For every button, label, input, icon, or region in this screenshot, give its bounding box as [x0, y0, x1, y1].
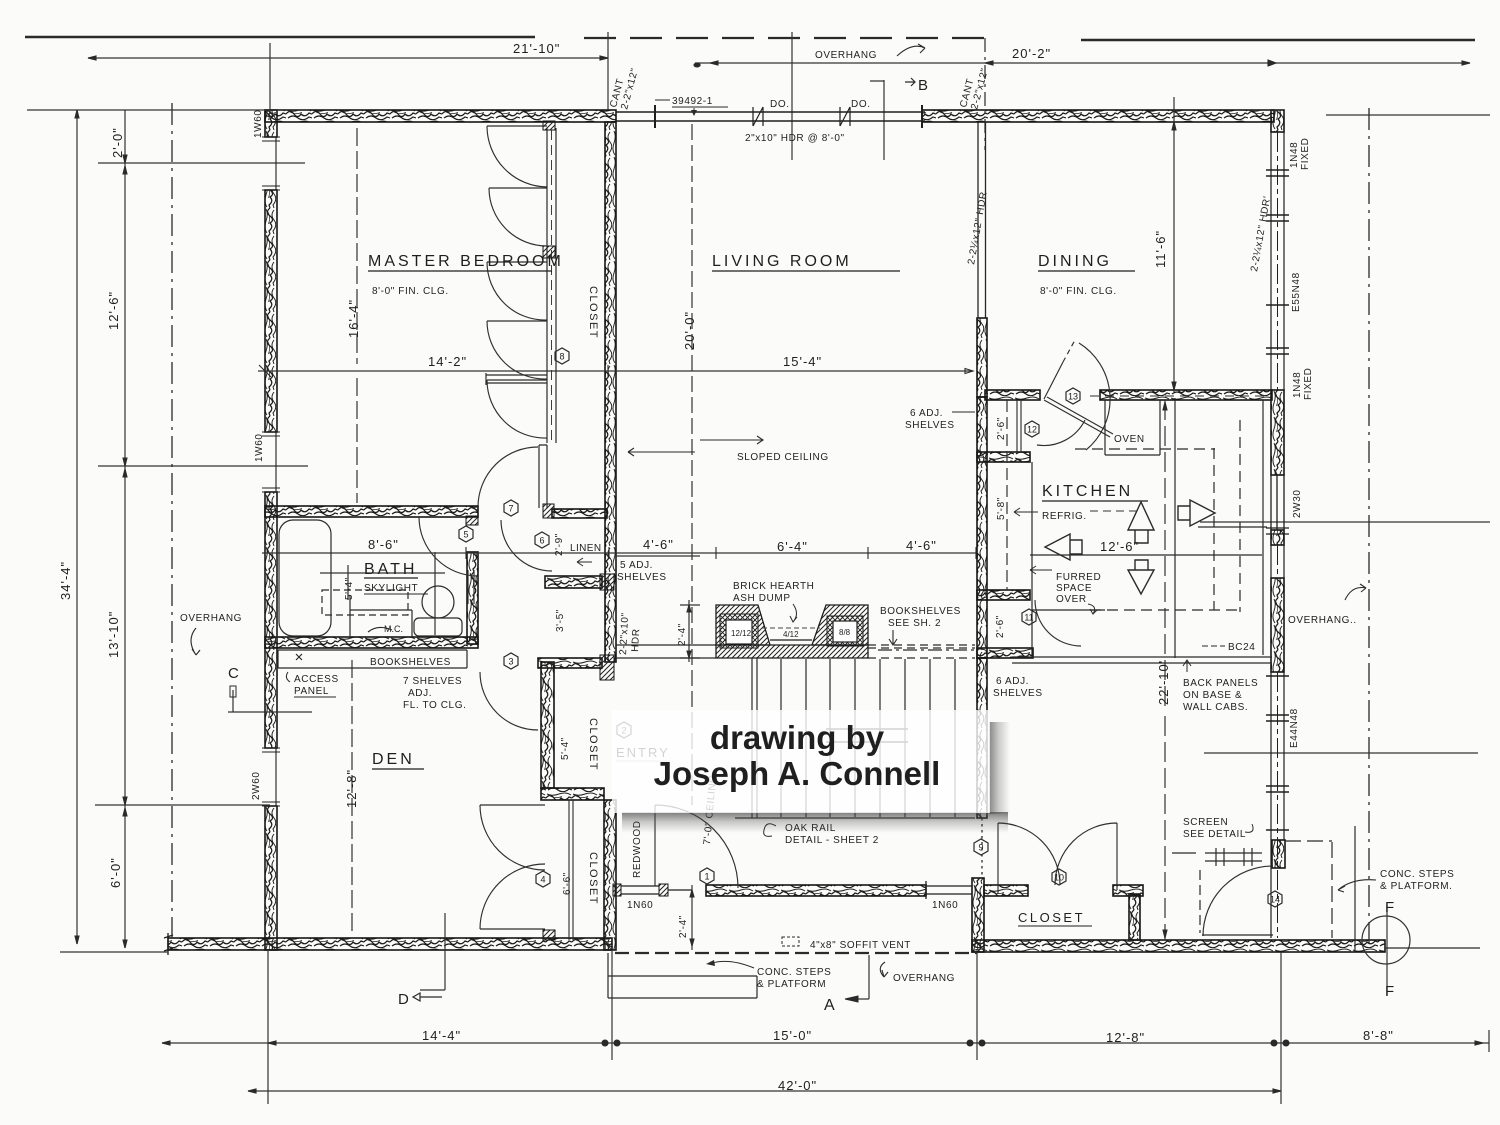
svg-text:SHELVES: SHELVES: [617, 572, 667, 583]
svg-text:E55N48: E55N48: [1291, 272, 1302, 312]
svg-text:1N60: 1N60: [932, 900, 958, 911]
svg-text:4/12: 4/12: [783, 630, 799, 639]
svg-text:BOOKSHELVES: BOOKSHELVES: [880, 606, 961, 617]
svg-text:DEN: DEN: [372, 751, 415, 768]
svg-text:SKYLIGHT: SKYLIGHT: [364, 583, 418, 594]
svg-text:6 ADJ.: 6 ADJ.: [996, 676, 1029, 687]
svg-text:2'-9": 2'-9": [554, 533, 565, 556]
svg-text:ADJ.: ADJ.: [408, 688, 432, 699]
svg-text:8'-0" FIN. CLG.: 8'-0" FIN. CLG.: [1040, 286, 1117, 297]
svg-text:14'-4": 14'-4": [422, 1028, 461, 1043]
svg-text:PANEL: PANEL: [294, 686, 329, 697]
svg-text:FIXED: FIXED: [1300, 138, 1311, 170]
svg-text:7 SHELVES: 7 SHELVES: [403, 676, 462, 687]
svg-text:20'-2": 20'-2": [1012, 46, 1051, 61]
svg-text:8'-6": 8'-6": [368, 537, 399, 552]
svg-text:12'-6": 12'-6": [106, 291, 121, 330]
svg-text:FIXED: FIXED: [1303, 368, 1314, 400]
svg-text:A: A: [824, 997, 835, 1014]
svg-text:F: F: [1385, 983, 1394, 1000]
svg-text:LIVING ROOM: LIVING ROOM: [712, 253, 852, 270]
svg-text:15'-0": 15'-0": [773, 1028, 812, 1043]
svg-text:1N48: 1N48: [1289, 142, 1300, 168]
svg-text:SHELVES: SHELVES: [905, 420, 955, 431]
svg-text:1W60: 1W60: [253, 109, 264, 138]
svg-text:DINING: DINING: [1038, 253, 1112, 270]
svg-text:SPACE: SPACE: [1056, 583, 1092, 594]
svg-text:OVEN: OVEN: [1114, 434, 1145, 445]
svg-text:4"x8" SOFFIT VENT: 4"x8" SOFFIT VENT: [810, 940, 911, 951]
svg-text:DO.: DO.: [851, 99, 871, 110]
svg-text:ON BASE &: ON BASE &: [1183, 690, 1242, 701]
svg-text:10: 10: [1054, 873, 1064, 883]
svg-text:1W60: 1W60: [254, 433, 265, 462]
svg-text:SEE SH. 2: SEE SH. 2: [888, 618, 941, 629]
svg-text:CLOSET: CLOSET: [587, 286, 599, 339]
svg-text:8'-0" FIN. CLG.: 8'-0" FIN. CLG.: [372, 286, 449, 297]
svg-text:6'-6": 6'-6": [562, 872, 573, 895]
svg-text:REFRIG.: REFRIG.: [1042, 511, 1087, 522]
svg-text:OVER: OVER: [1056, 594, 1087, 605]
svg-text:9: 9: [978, 843, 983, 853]
svg-text:OVERHANG: OVERHANG: [180, 613, 242, 624]
svg-text:2'-6": 2'-6": [995, 615, 1006, 638]
svg-text:BRICK HEARTH: BRICK HEARTH: [733, 581, 814, 592]
svg-text:WALL CABS.: WALL CABS.: [1183, 702, 1248, 713]
svg-text:22'-10': 22'-10': [1156, 660, 1171, 705]
svg-text:7: 7: [508, 504, 513, 514]
svg-text:15'-4": 15'-4": [783, 354, 822, 369]
svg-text:2'-4": 2'-4": [678, 915, 689, 938]
svg-text:BACK PANELS: BACK PANELS: [1183, 678, 1258, 689]
svg-text:5'-4": 5'-4": [560, 737, 571, 760]
svg-text:F: F: [1385, 899, 1394, 916]
svg-text:1N48: 1N48: [1292, 372, 1303, 398]
svg-text:CLOSET: CLOSET: [587, 852, 599, 905]
svg-text:12'-8": 12'-8": [1106, 1030, 1145, 1045]
svg-text:2'-6": 2'-6": [996, 417, 1007, 440]
svg-text:DO.: DO.: [770, 99, 790, 110]
svg-text:5 ADJ.: 5 ADJ.: [620, 560, 653, 571]
svg-text:16'-4": 16'-4": [346, 299, 361, 338]
svg-text:1: 1: [704, 872, 709, 882]
svg-text:3: 3: [508, 657, 513, 667]
svg-text:12: 12: [1027, 425, 1037, 435]
svg-text:12/12: 12/12: [731, 629, 752, 638]
svg-text:2'-4": 2'-4": [677, 623, 688, 646]
svg-text:21'-10": 21'-10": [513, 41, 560, 56]
svg-text:4'-6": 4'-6": [643, 537, 674, 552]
svg-text:MASTER BEDROOM: MASTER BEDROOM: [368, 253, 564, 270]
svg-text:B: B: [918, 77, 928, 94]
svg-text:11: 11: [1024, 613, 1033, 623]
svg-text:SHELVES: SHELVES: [993, 688, 1043, 699]
svg-text:M.C.: M.C.: [384, 624, 403, 634]
svg-text:1N60: 1N60: [627, 900, 653, 911]
svg-text:6: 6: [539, 536, 544, 546]
svg-text:12'-6": 12'-6": [1100, 539, 1139, 554]
svg-text:D: D: [398, 991, 409, 1008]
svg-text:FL. TO CLG.: FL. TO CLG.: [403, 700, 466, 711]
svg-text:CLOSET: CLOSET: [587, 718, 599, 771]
svg-text:6 ADJ.: 6 ADJ.: [910, 408, 943, 419]
svg-text:5'-4": 5'-4": [344, 577, 355, 600]
svg-text:2'-0": 2'-0": [110, 127, 125, 158]
svg-text:13: 13: [1068, 392, 1078, 402]
svg-text:CONC. STEPS: CONC. STEPS: [757, 967, 831, 978]
svg-text:HDR: HDR: [630, 628, 642, 652]
svg-text:2W30: 2W30: [1292, 489, 1303, 518]
svg-text:& PLATFORM.: & PLATFORM.: [1380, 881, 1453, 892]
svg-text:11'-6": 11'-6": [1153, 230, 1168, 268]
svg-text:4: 4: [540, 875, 545, 885]
svg-text:2"x10" HDR @ 8'-0": 2"x10" HDR @ 8'-0": [745, 133, 845, 144]
svg-text:E44N48: E44N48: [1289, 708, 1300, 748]
svg-text:& PLATFORM: & PLATFORM: [757, 979, 826, 990]
svg-text:BC24: BC24: [1228, 642, 1255, 653]
svg-text:CLOSET: CLOSET: [1018, 910, 1085, 925]
svg-text:13'-10": 13'-10": [106, 611, 121, 658]
svg-text:34'-4": 34'-4": [58, 561, 73, 600]
svg-text:2W60: 2W60: [251, 771, 262, 800]
svg-text:BATH: BATH: [364, 561, 417, 578]
svg-text:SLOPED CEILING: SLOPED CEILING: [737, 452, 829, 463]
svg-text:5'-8": 5'-8": [996, 497, 1007, 520]
svg-text:12'-8": 12'-8": [344, 769, 359, 808]
svg-text:SCREEN: SCREEN: [1183, 817, 1228, 828]
svg-text:KITCHEN: KITCHEN: [1042, 483, 1133, 500]
svg-text:CONC. STEPS: CONC. STEPS: [1380, 869, 1454, 880]
svg-text:14'-2": 14'-2": [428, 354, 467, 369]
svg-text:14: 14: [1270, 895, 1280, 905]
svg-text:6'-0": 6'-0": [108, 857, 123, 888]
svg-text:OVERHANG: OVERHANG: [893, 973, 955, 984]
svg-text:SEE DETAIL: SEE DETAIL: [1183, 829, 1246, 840]
svg-text:BOOKSHELVES: BOOKSHELVES: [370, 657, 451, 668]
svg-text:39492-1: 39492-1: [672, 96, 713, 107]
svg-text:FURRED: FURRED: [1056, 572, 1101, 583]
svg-text:LINEN: LINEN: [570, 543, 601, 554]
svg-text:8: 8: [559, 352, 564, 362]
svg-text:5: 5: [463, 530, 468, 540]
svg-text:OVERHANG..: OVERHANG..: [1288, 615, 1357, 626]
svg-text:20'-0": 20'-0": [682, 311, 697, 350]
svg-text:OVERHANG: OVERHANG: [815, 50, 877, 61]
svg-text:drawing by: drawing by: [710, 719, 885, 756]
svg-text:ACCESS: ACCESS: [294, 674, 339, 685]
svg-text:8/8: 8/8: [839, 628, 851, 637]
svg-text:DETAIL - SHEET 2: DETAIL - SHEET 2: [785, 835, 879, 846]
svg-text:4'-6": 4'-6": [906, 538, 937, 553]
svg-text:ASH DUMP: ASH DUMP: [733, 593, 791, 604]
svg-text:6'-4": 6'-4": [777, 539, 808, 554]
svg-text:8'-8": 8'-8": [1363, 1028, 1394, 1043]
svg-text:Joseph A. Connell: Joseph A. Connell: [654, 755, 941, 792]
svg-text:42'-0": 42'-0": [778, 1078, 817, 1093]
svg-text:3'-5": 3'-5": [555, 609, 566, 632]
svg-text:C: C: [228, 665, 239, 682]
